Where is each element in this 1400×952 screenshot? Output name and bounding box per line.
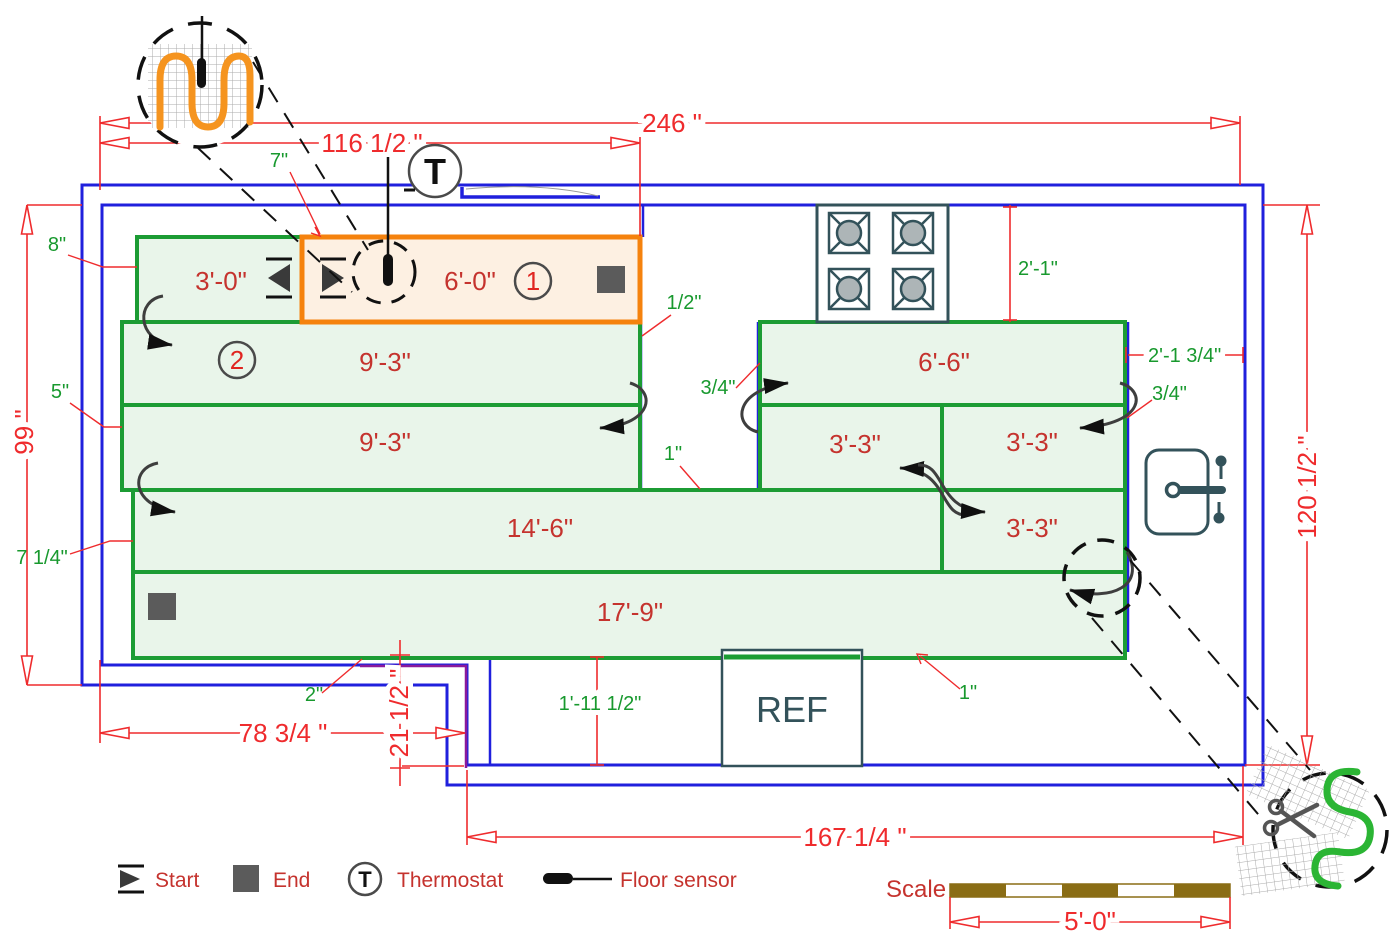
legend-thermostat-symbol: T bbox=[358, 867, 372, 892]
scale-dimension: 5'-0" bbox=[1064, 906, 1116, 936]
mat-3-3-a-label: 3'-3" bbox=[829, 429, 881, 459]
dim-left-width: 116 1/2 " bbox=[321, 128, 422, 158]
mat-6-6-label: 6'-6" bbox=[918, 347, 970, 377]
zone1-end-marker-icon bbox=[597, 266, 625, 293]
legend-start-label: Start bbox=[155, 869, 200, 892]
note-left-gap-mid: 5" bbox=[51, 381, 69, 403]
thermostat-symbol: T bbox=[424, 151, 446, 192]
dim-bottom-right-width: 167 1/4 " bbox=[803, 822, 906, 852]
scale-label: Scale bbox=[886, 876, 946, 903]
legend-floor-sensor-label: Floor sensor bbox=[620, 869, 737, 892]
note-left-gap-bottom: 7 1/4" bbox=[16, 547, 68, 569]
dim-counter-depth: 21 1/2 " bbox=[384, 669, 414, 758]
floor-heating-plan: REF T 1 2 bbox=[0, 0, 1400, 952]
zone2-end-marker-icon bbox=[148, 593, 176, 620]
note-counter-width: 1'-11 1/2" bbox=[559, 693, 642, 715]
mat-9-3-a-label: 9'-3" bbox=[359, 347, 411, 377]
zone2-number: 2 bbox=[230, 345, 244, 375]
mat-6-0-label: 6'-0" bbox=[444, 266, 496, 296]
note-bottom-gap: 2" bbox=[305, 684, 323, 706]
note-island-bottom: 1" bbox=[664, 443, 682, 465]
ref-label: REF bbox=[756, 689, 828, 730]
mat-3-3-b-label: 3'-3" bbox=[1006, 427, 1058, 457]
stove-icon bbox=[817, 205, 948, 322]
note-island-left: 1/2" bbox=[667, 292, 702, 314]
mat-17-9-label: 17'-9" bbox=[597, 597, 663, 627]
note-top-gap: 7" bbox=[270, 150, 288, 172]
note-right-gap: 3/4" bbox=[1152, 383, 1187, 405]
refrigerator: REF bbox=[722, 650, 862, 766]
dim-right-height: 120 1/2 " bbox=[1292, 435, 1322, 538]
legend-end-icon bbox=[233, 865, 259, 892]
mat-14-6-label: 14'-6" bbox=[507, 513, 573, 543]
note-island-right: 3/4" bbox=[701, 377, 736, 399]
legend-thermostat-label: Thermostat bbox=[397, 869, 503, 892]
mat-3-3-c-label: 3'-3" bbox=[1006, 513, 1058, 543]
mat-3-0-label: 3'-0" bbox=[195, 266, 247, 296]
dim-left-height: 99 " bbox=[9, 409, 39, 454]
dim-bottom-left-width: 78 3/4 " bbox=[239, 718, 328, 748]
note-bottom-right-gap: 1" bbox=[959, 682, 977, 704]
mat-9-3-b-label: 9'-3" bbox=[359, 427, 411, 457]
zone1-number: 1 bbox=[526, 266, 540, 296]
note-left-gap-top: 8" bbox=[48, 234, 66, 256]
note-right-offset: 2'-1 3/4" bbox=[1148, 345, 1221, 367]
floor-plan-svg: REF T 1 2 bbox=[0, 0, 1400, 952]
note-stove-offset: 2'-1" bbox=[1018, 258, 1058, 280]
detail-floor-sensor bbox=[197, 58, 206, 88]
legend-end-label: End bbox=[273, 869, 310, 892]
dim-total-width: 246 " bbox=[642, 108, 702, 138]
